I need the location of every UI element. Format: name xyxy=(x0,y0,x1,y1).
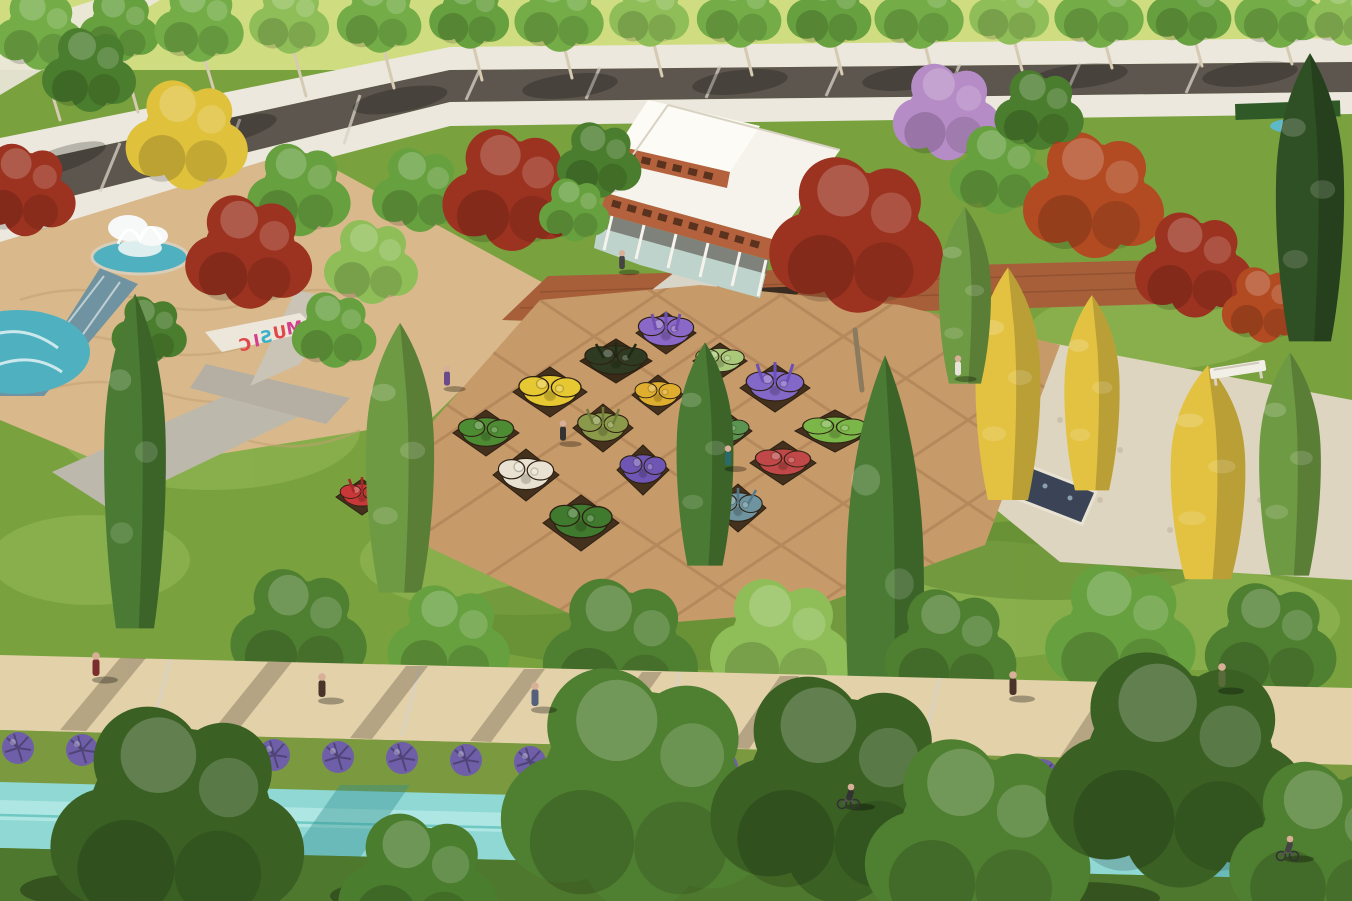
lavender-bush xyxy=(386,742,418,774)
lavender-bush xyxy=(322,741,354,773)
park-render: M U S I C xyxy=(0,0,1352,901)
lavender-bush xyxy=(2,732,34,764)
lavender-bush xyxy=(66,734,98,766)
lavender-bush xyxy=(450,744,482,776)
